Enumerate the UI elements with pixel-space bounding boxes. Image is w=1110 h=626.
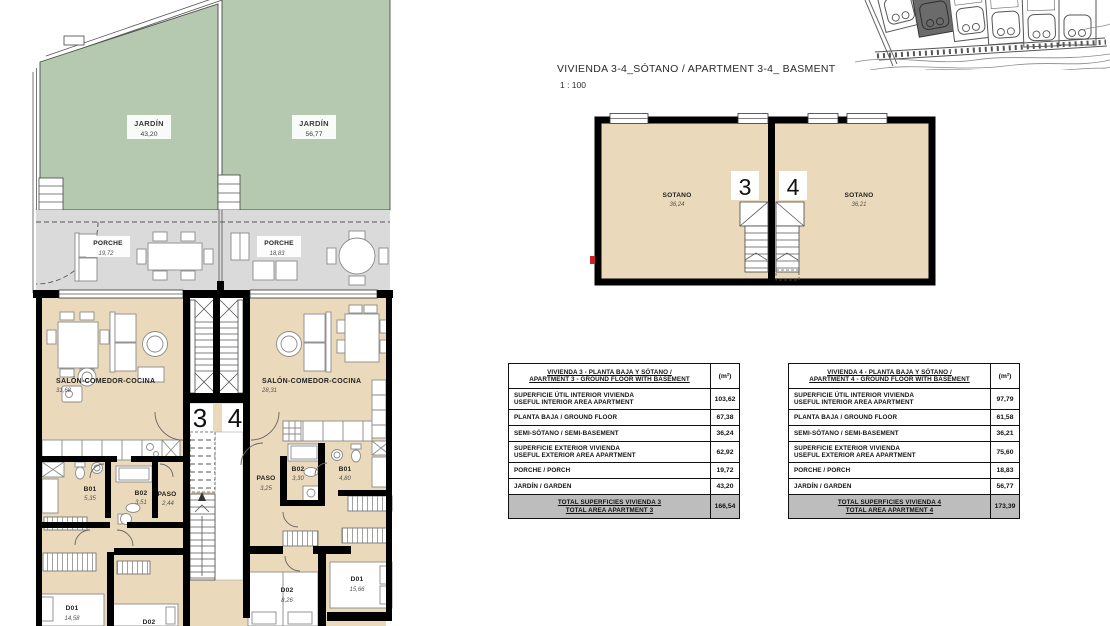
armchair-icon [143, 332, 168, 357]
basement-plan-title: VIVIENDA 3-4_SÓTANO / APARTMENT 3-4_ BAS… [557, 63, 836, 90]
table-3-unit-header: (m²) [711, 364, 739, 388]
sotano-3-area-value: 36,24 [669, 202, 685, 208]
d01-4-label: D01 [351, 576, 364, 583]
site-units-row [873, 0, 1096, 47]
dining-table-icon [58, 322, 98, 368]
table-3-total-value: 166,54 [711, 495, 739, 518]
basement-divider-wall [768, 123, 775, 279]
site-highlighted-unit [910, 0, 956, 37]
dining-table-icon [345, 314, 379, 362]
table-3-total-row: TOTAL SUPERFICIES VIVIENDA 3 TOTAL AREA … [509, 495, 739, 518]
salon-3-label: SALÓN-COMEDOR-COCINA [56, 376, 155, 385]
table-row: SEMI-SÓTANO / SEMI-BASEMENT 36,24 [509, 426, 739, 442]
unit-4-number: 4 [228, 403, 242, 433]
garden-3-area-value: 43,20 [140, 131, 157, 138]
table-4-header: VIVIENDA 4 - PLANTA BAJA Y SÓTANO / APAR… [789, 364, 991, 388]
sotano-3-label: SOTANO [663, 192, 692, 199]
armchair-icon [277, 332, 302, 357]
garden-3-label: JARDÍN [134, 119, 164, 128]
area-table-apartment-4: VIVIENDA 4 - PLANTA BAJA Y SÓTANO / APAR… [788, 363, 1020, 519]
salon-3-area-value: 31,68 [56, 388, 72, 394]
porch-4-label: PORCHE [264, 240, 294, 247]
paso-4-label: PASO [257, 475, 276, 482]
b01-3-label: B01 [84, 486, 97, 493]
table-row: SUPERFICIE ÚTIL INTERIOR VIVIENDAUSEFUL … [789, 389, 1019, 410]
table-row: JARDÍN / GARDEN 56,77 [789, 479, 1019, 495]
b02-4-area-value: 3,30 [292, 476, 304, 482]
table-row: SUPERFICIE EXTERIOR VIVIENDAUSEFUL EXTER… [789, 442, 1019, 463]
garden-4-area [218, 0, 390, 210]
porch-3-label: PORCHE [93, 240, 123, 247]
porch-3-area-value: 19,72 [98, 251, 114, 257]
d01-3-area-value: 14,58 [64, 616, 80, 622]
garden-4-steps [218, 175, 240, 210]
b01-4-label: B01 [339, 466, 352, 473]
garden-4-label: JARDÍN [299, 119, 329, 128]
central-staircase [185, 298, 248, 580]
table-4-total-value: 173,39 [991, 495, 1019, 518]
basement-unit-3-number: 3 [739, 174, 752, 200]
salon-4-area-value: 28,31 [261, 388, 277, 394]
sofa-icon [326, 312, 331, 372]
table-row: PORCHE / PORCH 18,83 [789, 463, 1019, 479]
b01-4-area-value: 4,80 [339, 476, 351, 482]
d02-4-area-value: 8,26 [281, 598, 293, 604]
porch-4-area-value: 18,83 [269, 251, 285, 257]
table-4-total-row: TOTAL SUPERFICIES VIVIENDA 4 TOTAL AREA … [789, 495, 1019, 518]
b01-3-area-value: 5,35 [84, 496, 96, 502]
basement-plan-title-text: VIVIENDA 3-4_SÓTANO / APARTMENT 3-4_ BAS… [557, 63, 836, 75]
d01-3-label: D01 [66, 605, 79, 612]
table-row: PLANTA BAJA / GROUND FLOOR 61,58 [789, 410, 1019, 426]
table-row: PORCHE / PORCH 19,72 [509, 463, 739, 479]
garden-3-area [39, 4, 218, 210]
sofa-icon [110, 312, 115, 372]
b02-3-area-value: 3,51 [135, 500, 147, 506]
salon-4-label: SALÓN-COMEDOR-COCINA [262, 376, 361, 385]
d02-3-label: D02 [143, 619, 156, 626]
wardrobe-icon [348, 496, 392, 511]
bed-d01-4-icon [330, 562, 392, 608]
table-row: SUPERFICIE ÚTIL INTERIOR VIVIENDAUSEFUL … [509, 389, 739, 410]
table-3-header: VIVIENDA 3 - PLANTA BAJA Y SÓTANO / APAR… [509, 364, 711, 388]
paso-3-area-value: 2,44 [161, 501, 174, 507]
sotano-4-area-value: 36,21 [851, 202, 866, 208]
site-location-plan [855, 0, 1110, 70]
area-table-apartment-3: VIVIENDA 3 - PLANTA BAJA Y SÓTANO / APAR… [508, 363, 740, 519]
garden-4-area-value: 56,77 [305, 131, 322, 138]
wardrobe-icon [342, 528, 387, 543]
d01-4-area-value: 15,66 [349, 587, 365, 593]
table-row: SUPERFICIE EXTERIOR VIVIENDAUSEFUL EXTER… [509, 442, 739, 463]
table-row: JARDÍN / GARDEN 43,20 [509, 479, 739, 495]
basement-unit-4-number: 4 [787, 174, 800, 200]
table-row: PLANTA BAJA / GROUND FLOOR 67,38 [509, 410, 739, 426]
table-row: SEMI-SÓTANO / SEMI-BASEMENT 36,21 [789, 426, 1019, 442]
table-4-unit-header: (m²) [991, 364, 1019, 388]
reference-mark [590, 256, 595, 264]
wardrobe-icon [283, 531, 318, 546]
basement-plan-scale: 1 : 100 [560, 80, 836, 90]
sotano-4-label: SOTANO [845, 192, 874, 199]
b02-4-label: B02 [292, 466, 305, 473]
b02-3-label: B02 [135, 490, 148, 497]
paso-4-area-value: 3,25 [260, 486, 272, 492]
wardrobe-icon [117, 561, 150, 574]
unit-3-number: 3 [193, 403, 207, 433]
basement-floor-plan: 3 4 SOTANO 36,24 SOTANO 36,21 [590, 110, 940, 290]
wardrobe-icon [43, 553, 96, 571]
d02-4-label: D02 [281, 587, 294, 594]
architectural-drawing-sheet: JARDÍN 43,20 JARDÍN 56,77 PORCHE 19,72 P… [0, 0, 1110, 626]
paso-3-label: PASO [158, 491, 177, 498]
ground-floor-plan: JARDÍN 43,20 JARDÍN 56,77 PORCHE 19,72 P… [0, 0, 460, 626]
